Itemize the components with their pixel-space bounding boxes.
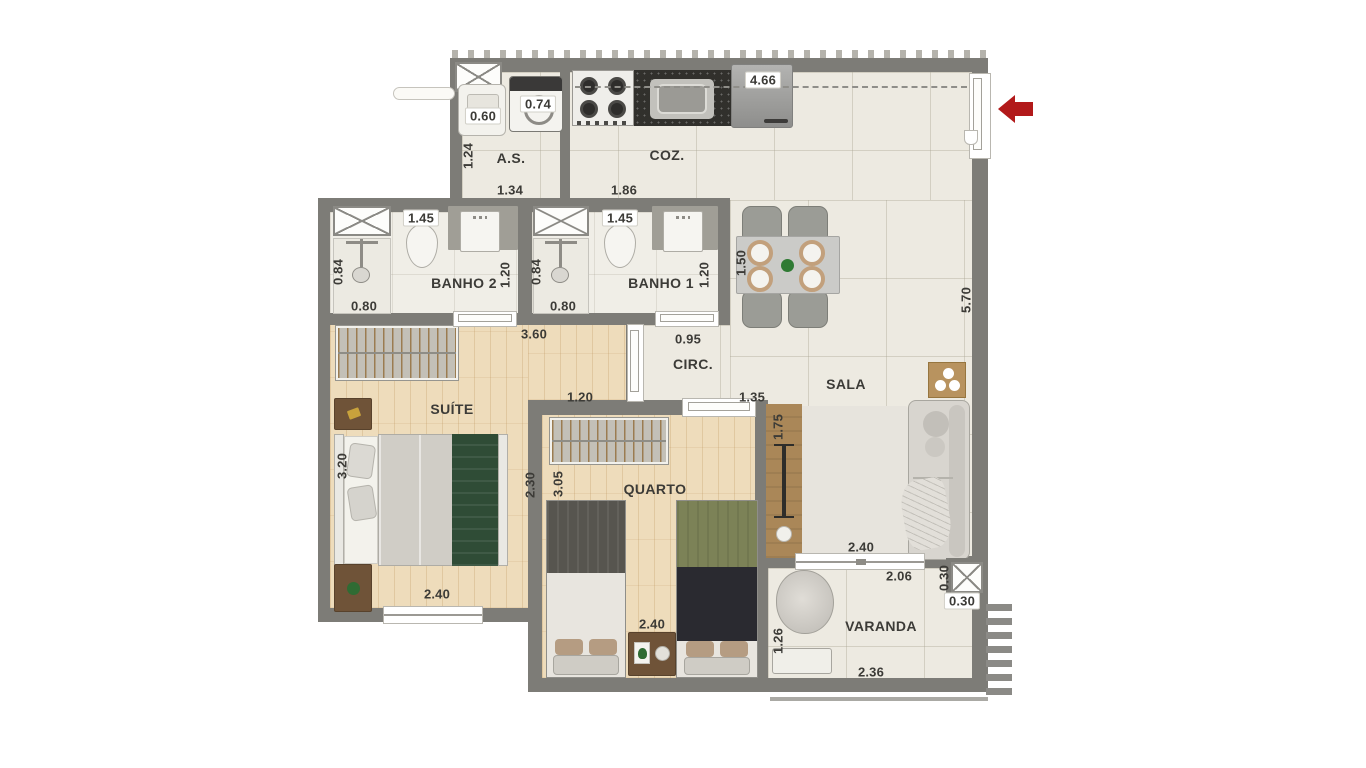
sala-varanda-sliding-door [795, 553, 925, 570]
suite-floor-ext [528, 325, 628, 400]
overhead-cabinet-dashed-line [575, 86, 967, 88]
wall-banho-divider [518, 212, 532, 313]
room-label-circ: CIRC. [673, 356, 713, 372]
bed-footboard [498, 434, 508, 566]
brise-bar [986, 632, 1012, 639]
varanda-bench [772, 648, 832, 674]
varanda-rail-shadow [770, 697, 988, 701]
tv-panel [766, 404, 802, 558]
plate [747, 240, 773, 266]
plate [799, 240, 825, 266]
entry-arrow-shaft [1014, 102, 1033, 116]
room-label-banho2: BANHO 2 [431, 275, 497, 291]
burner [580, 100, 598, 118]
bed-headboard [334, 434, 344, 566]
laundry-tank [458, 84, 506, 136]
washing-machine [509, 76, 563, 132]
suite-wardrobe [336, 326, 458, 380]
top-wall-hatch [452, 50, 986, 58]
banho2-door-leaf [458, 314, 512, 322]
bed-blanket-green [677, 501, 757, 567]
shower-bar [545, 241, 577, 244]
room-label-sala: SALA [826, 376, 866, 392]
sofa [908, 400, 970, 560]
fridge-handle [764, 119, 788, 123]
washing-machine-drum [524, 95, 554, 125]
wall-banho-right [718, 200, 730, 325]
room-label-banho1: BANHO 1 [628, 275, 694, 291]
shower-head [352, 267, 370, 283]
banho1-door-leaf [660, 314, 714, 322]
washing-machine-panel [510, 77, 562, 91]
room-label-varanda: VARANDA [845, 618, 917, 634]
bed-pillow-stack [553, 655, 619, 675]
quarto-door-leaf [688, 402, 750, 411]
table-centerpiece-plant [781, 259, 794, 272]
banho2-shower-stall [333, 238, 391, 314]
varanda-pouf-chair [776, 570, 834, 634]
room-label-quarto: QUARTO [624, 481, 687, 497]
nightstand-plant [638, 648, 647, 659]
dining-chair [742, 290, 782, 328]
quarto-nightstand [628, 632, 676, 676]
fridge [731, 64, 793, 128]
varanda-shaft-xbox [951, 562, 983, 593]
banho1-shower-xbox [533, 206, 589, 236]
tv-base [774, 516, 794, 518]
bed-pillow [555, 639, 583, 655]
sala-rug [800, 406, 908, 558]
banho2-sink [460, 211, 500, 252]
side-table-decor [943, 368, 954, 379]
entrance-door-latch [964, 130, 978, 145]
faucet-dots [473, 216, 487, 219]
sofa-back [949, 405, 965, 557]
kitchen-sink [650, 79, 714, 119]
brise-bar [986, 604, 1012, 611]
brise-bar [986, 674, 1012, 681]
bed-green-runner [452, 434, 498, 566]
suite-window [383, 606, 483, 624]
room-label-suite: SUÍTE [430, 401, 473, 417]
clothesline-rod [393, 87, 455, 100]
panel-decor-ball [776, 526, 792, 542]
stove-knobs [577, 121, 631, 125]
bed-pillow [589, 639, 617, 655]
burner [608, 100, 626, 118]
quarto-bed-left [546, 500, 626, 678]
kitchen-sink-basin [657, 84, 707, 114]
wall-varanda-bottom [755, 678, 988, 692]
stove [572, 70, 634, 126]
room-label-coz: COZ. [649, 147, 684, 163]
banho2-toilet-tank [405, 212, 439, 223]
shower-bar [346, 241, 378, 244]
nightstand-plant [347, 582, 360, 595]
bed-pillow [720, 641, 748, 657]
wall-left-outer [318, 212, 330, 622]
bed-pillow-stack [684, 657, 750, 675]
bed-pillow [346, 442, 376, 479]
dining-table [736, 236, 840, 294]
wall-suite-quarto [528, 400, 542, 692]
suite-nightstand-top [334, 398, 372, 430]
suite-nightstand-bottom [334, 564, 372, 612]
banho1-sink [663, 211, 703, 252]
bed-pillow [686, 641, 714, 657]
suite-bed [334, 434, 510, 566]
sliding-door-handle [856, 559, 866, 565]
plate [747, 266, 773, 292]
laundry-tank-basin [467, 94, 499, 124]
sofa-round-pillow [923, 411, 949, 437]
sofa-round-pillow [925, 437, 945, 457]
sala-side-table [928, 362, 966, 398]
tv [782, 446, 786, 516]
brise-bar [986, 646, 1012, 653]
shower-head [551, 267, 569, 283]
dining-chair [788, 290, 828, 328]
faucet-dots [676, 216, 690, 219]
banho1-toilet-tank [603, 212, 637, 223]
wall-quarto-bottom [528, 678, 772, 692]
quarto-bed-right [676, 500, 758, 678]
room-label-as: A.S. [497, 150, 526, 166]
nightstand-bowl [655, 646, 670, 661]
brise-bar [986, 660, 1012, 667]
floor-plan: A.S. COZ. BANHO 2 BANHO 1 CIRC. SALA SUÍ… [0, 0, 1366, 768]
banho1-shower-stall [533, 238, 589, 314]
quarto-wardrobe [550, 418, 668, 464]
nightstand-decor [347, 407, 361, 420]
brise-bar [986, 618, 1012, 625]
tv-base [774, 444, 794, 446]
entry-arrow-head [998, 95, 1015, 123]
bed-blanket-dark [547, 501, 625, 573]
plate [799, 266, 825, 292]
bed-pillow [347, 484, 378, 522]
suite-door-leaf [630, 330, 639, 392]
bed-blanket-black [677, 567, 757, 641]
brise-bar [986, 688, 1012, 695]
banho2-shower-xbox [333, 206, 391, 236]
